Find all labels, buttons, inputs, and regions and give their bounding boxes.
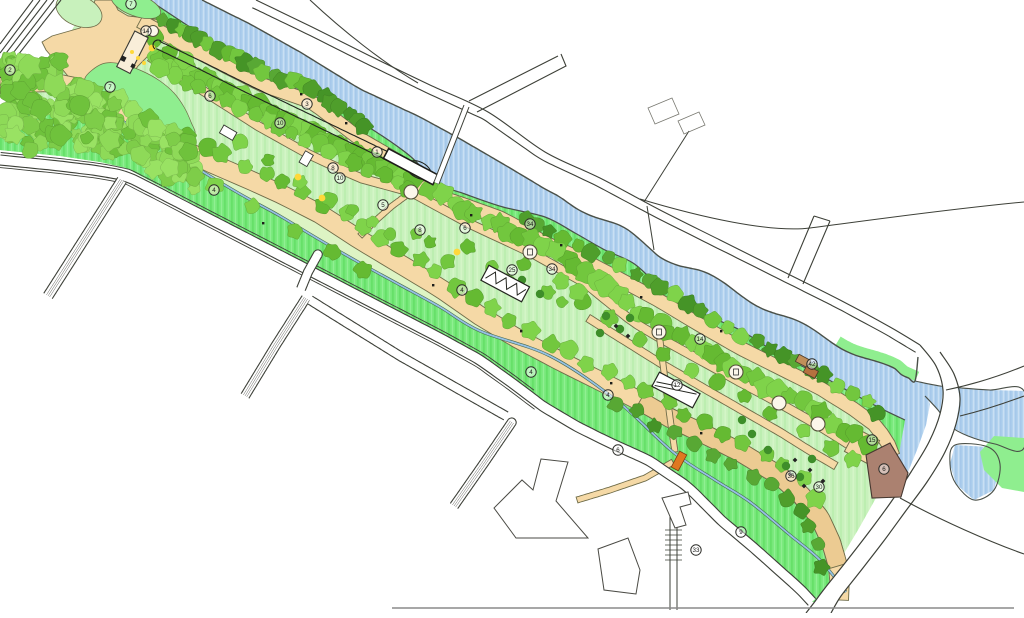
svg-text:14: 14 [143,28,150,35]
svg-text:6: 6 [463,225,467,232]
svg-text:8: 8 [331,165,335,172]
svg-text:12: 12 [674,382,681,389]
svg-text:42: 42 [809,361,816,368]
svg-text:9: 9 [739,529,743,536]
svg-text:4: 4 [460,287,464,294]
svg-text:4: 4 [212,187,216,194]
svg-text:7: 7 [129,1,133,8]
svg-text:10: 10 [277,120,284,127]
svg-text:25: 25 [509,267,516,274]
svg-text:6: 6 [616,447,620,454]
svg-text:6: 6 [882,466,886,473]
svg-text:14: 14 [697,336,704,343]
svg-text:34: 34 [549,266,556,273]
svg-text:34: 34 [527,221,534,228]
svg-text:1: 1 [375,149,379,156]
svg-text:15: 15 [869,437,876,444]
svg-text:3: 3 [305,101,309,108]
svg-text:5: 5 [381,202,385,209]
svg-text:33: 33 [693,547,700,554]
svg-text:8: 8 [418,227,422,234]
svg-text:4: 4 [529,369,533,376]
svg-text:6: 6 [208,93,212,100]
svg-text:10: 10 [337,175,344,182]
svg-text:4: 4 [606,392,610,399]
svg-text:30: 30 [816,484,823,491]
svg-text:2: 2 [8,67,12,74]
svg-text:7: 7 [108,84,112,91]
svg-text:36: 36 [788,473,795,480]
